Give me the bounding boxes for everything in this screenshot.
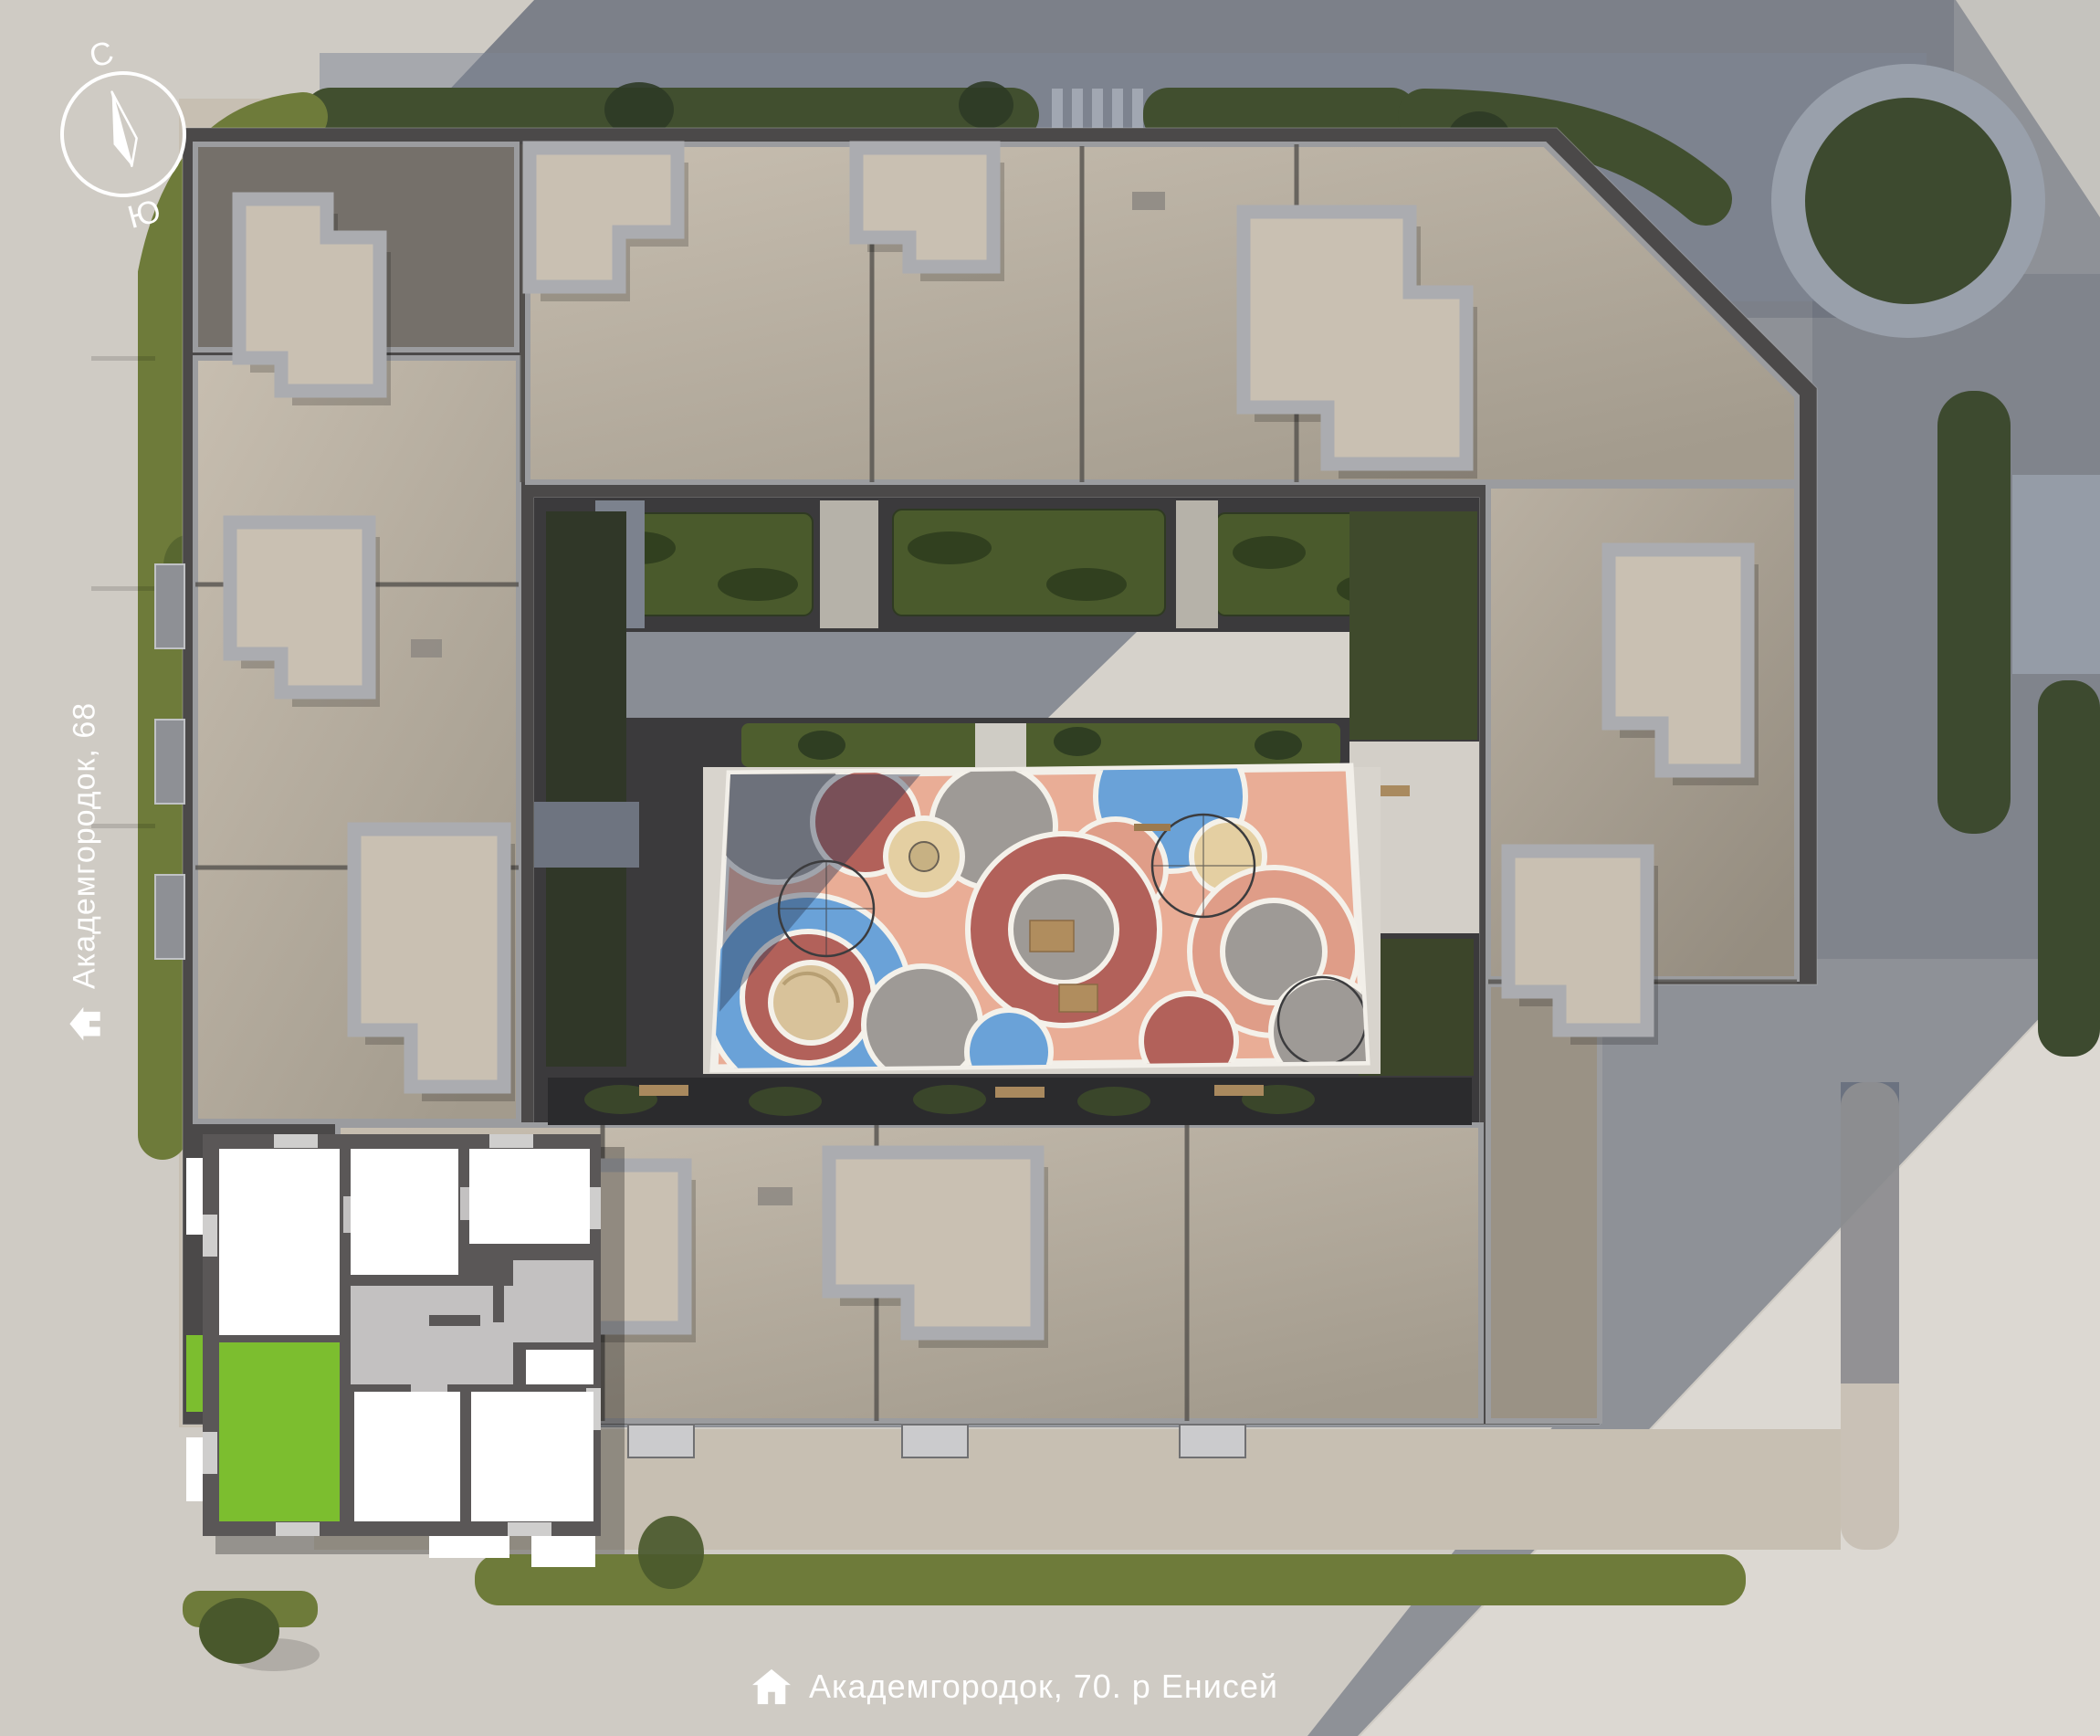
street-label-bottom-text: Академгородок, 70. р Енисей bbox=[809, 1668, 1278, 1706]
balconies bbox=[155, 564, 184, 959]
home-icon bbox=[751, 1668, 793, 1706]
lawn-strip-right bbox=[1937, 391, 2011, 834]
garden-right bbox=[1349, 511, 1477, 740]
bench bbox=[995, 1087, 1045, 1098]
home-icon bbox=[68, 1005, 102, 1042]
parking-pavers bbox=[2012, 475, 2100, 674]
playground bbox=[706, 721, 1381, 1099]
entrance-path bbox=[1176, 500, 1218, 628]
street-label-left-text: Академгородок, 68 bbox=[68, 702, 103, 989]
site-plan-render bbox=[0, 0, 2100, 1736]
street-label-bottom[interactable]: Академгородок, 70. р Енисей bbox=[751, 1668, 1278, 1706]
entrance-path bbox=[820, 500, 878, 628]
garden-left bbox=[546, 511, 626, 1067]
roundabout bbox=[1771, 64, 2045, 338]
garden-bottom bbox=[548, 1078, 1472, 1125]
selected-apartment-balcony bbox=[186, 1335, 203, 1412]
site-plan-page: С Ю Академгородок, 68 Академгородок, 70.… bbox=[0, 0, 2100, 1736]
street-label-left[interactable]: Академгородок, 68 bbox=[68, 702, 103, 1042]
floor-plan-overlay bbox=[186, 1134, 625, 1567]
tree bbox=[199, 1598, 279, 1664]
selected-apartment[interactable] bbox=[219, 1342, 340, 1521]
bench bbox=[1214, 1085, 1264, 1096]
tree bbox=[638, 1516, 704, 1589]
bench bbox=[639, 1085, 688, 1096]
